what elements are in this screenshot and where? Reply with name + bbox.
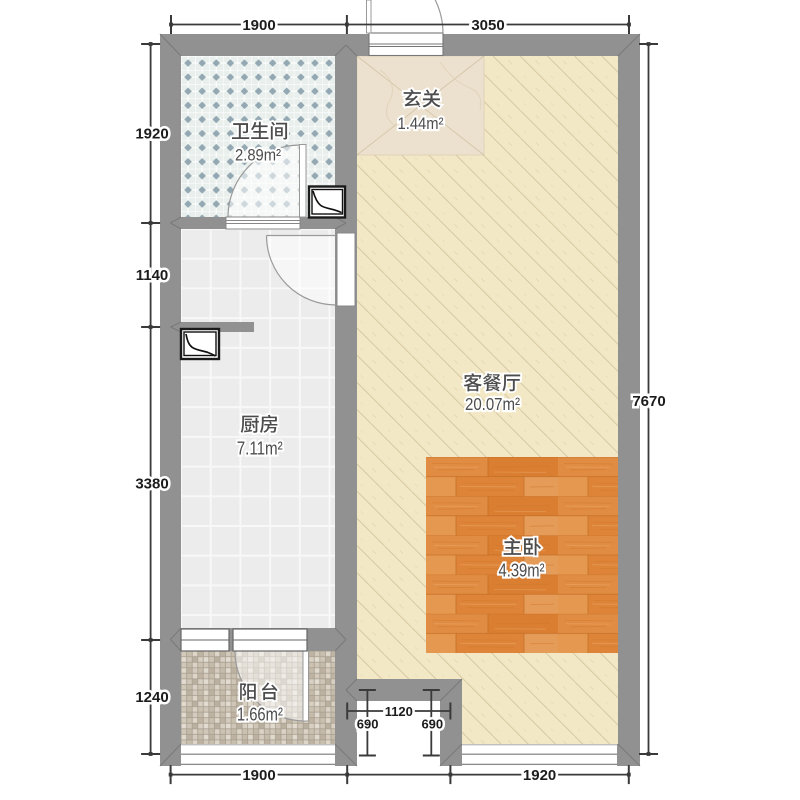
svg-text:1920: 1920 (523, 767, 556, 784)
svg-text:1140: 1140 (136, 267, 169, 284)
svg-text:690: 690 (357, 716, 379, 731)
svg-text:4.39m²: 4.39m² (499, 559, 545, 580)
svg-text:1900: 1900 (242, 17, 275, 34)
svg-text:3050: 3050 (471, 17, 504, 34)
svg-text:7670: 7670 (632, 393, 665, 410)
svg-text:3380: 3380 (135, 476, 168, 493)
svg-text:1120: 1120 (385, 704, 413, 719)
svg-text:1920: 1920 (135, 126, 168, 143)
svg-text:20.07m²: 20.07m² (465, 394, 520, 414)
svg-text:7.11m²: 7.11m² (237, 437, 283, 458)
svg-text:1.66m²: 1.66m² (237, 703, 283, 724)
svg-text:1240: 1240 (135, 689, 168, 706)
svg-text:1.44m²: 1.44m² (398, 114, 444, 133)
svg-text:1900: 1900 (242, 767, 275, 784)
svg-text:2.89m²: 2.89m² (235, 146, 281, 164)
svg-text:690: 690 (421, 716, 443, 731)
